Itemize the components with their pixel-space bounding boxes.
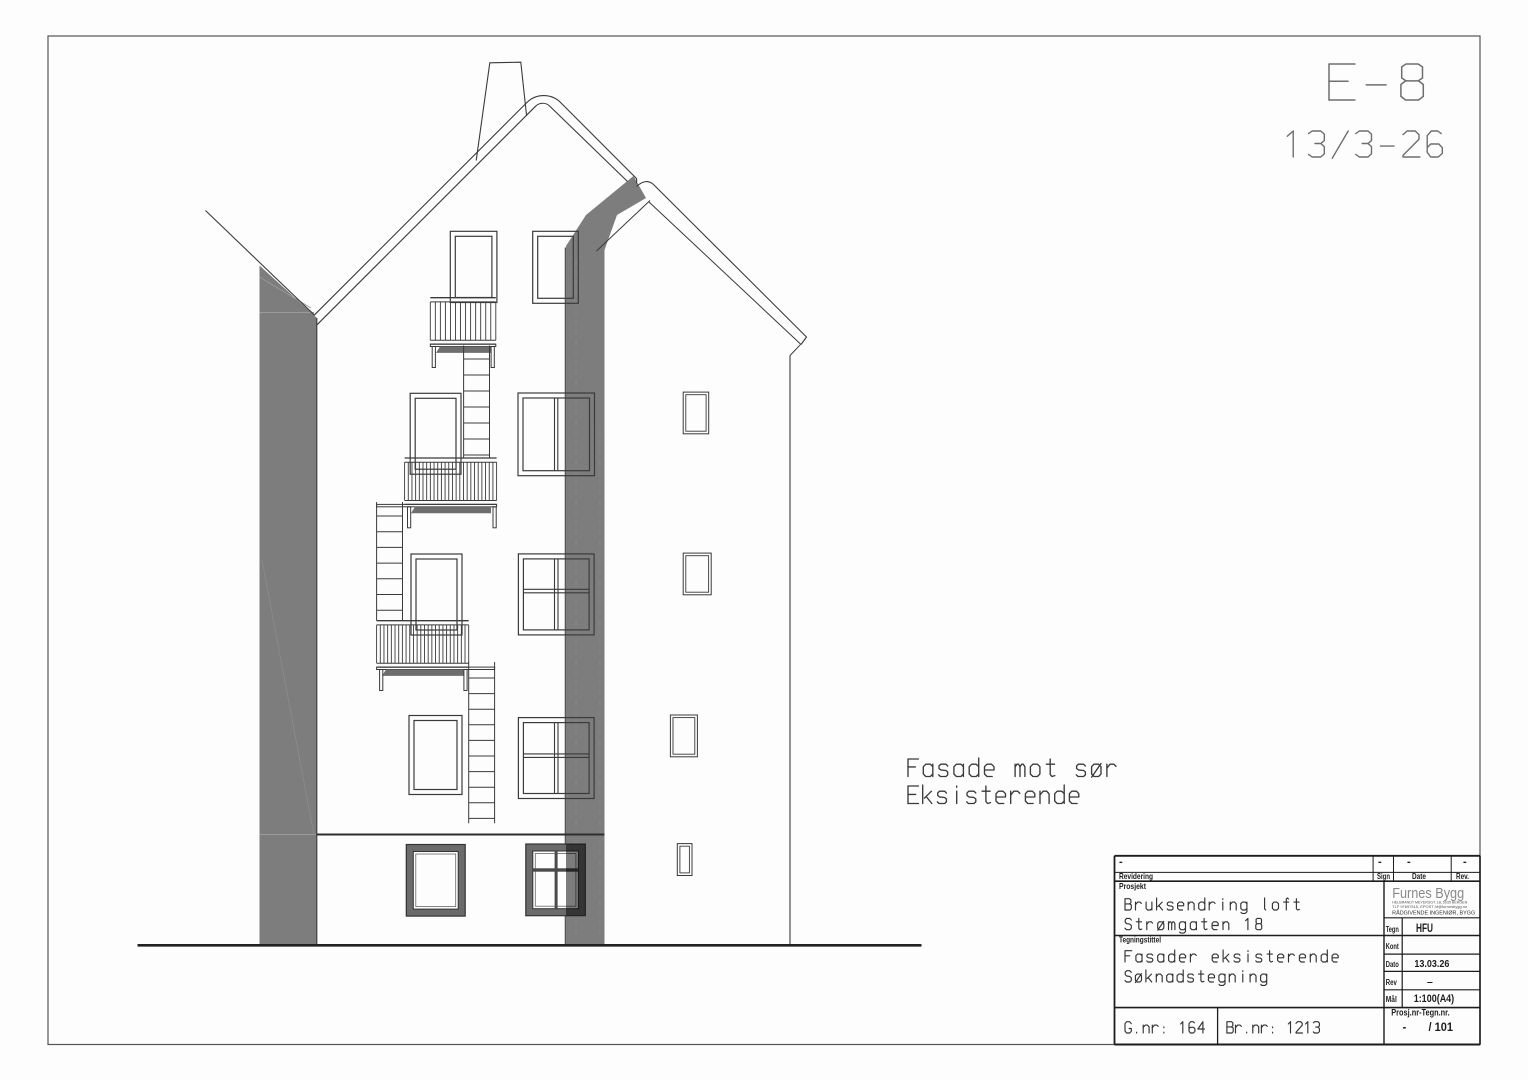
svg-text:Date: Date [1412, 872, 1426, 881]
svg-text:Prosj.nr-Tegn.nr.: Prosj.nr-Tegn.nr. [1391, 1008, 1450, 1019]
svg-text:13.03.26: 13.03.26 [1414, 958, 1449, 970]
svg-text:-: - [1119, 856, 1123, 868]
svg-text:/ 101: / 101 [1429, 1022, 1454, 1034]
svg-text:-: - [1463, 856, 1467, 868]
svg-text:-: - [1407, 856, 1411, 868]
svg-text:Kont: Kont [1386, 942, 1399, 951]
svg-text:Tegn: Tegn [1386, 925, 1399, 934]
svg-text:Sign: Sign [1377, 872, 1390, 881]
svg-text:Furnes Bygg: Furnes Bygg [1392, 886, 1464, 902]
svg-text:Dato: Dato [1386, 960, 1399, 969]
svg-text:–: – [1427, 976, 1433, 988]
svg-text:RÅDGIVENDE INGENIØR, BYGG: RÅDGIVENDE INGENIØR, BYGG [1392, 909, 1475, 916]
svg-text:Tegningstittel: Tegningstittel [1119, 935, 1161, 945]
svg-text:TLF 97697515, EPOST hf@furnesb: TLF 97697515, EPOST hf@furnesbygg.no [1392, 905, 1467, 909]
svg-text:-: - [1378, 856, 1382, 868]
svg-text:Mål: Mål [1386, 995, 1397, 1004]
svg-text:Rev: Rev [1386, 978, 1397, 987]
svg-text:Prosjekt: Prosjekt [1119, 881, 1146, 891]
svg-text:-: - [1403, 1022, 1407, 1034]
svg-text:HELBRANDT MEYERSGT. 18, 5035 B: HELBRANDT MEYERSGT. 18, 5035 BERGEN [1392, 901, 1467, 905]
svg-text:1:100(A4): 1:100(A4) [1414, 993, 1455, 1005]
svg-text:Rev.: Rev. [1456, 872, 1469, 881]
svg-text:HFU: HFU [1416, 923, 1433, 935]
svg-text:Revidering: Revidering [1119, 871, 1153, 881]
